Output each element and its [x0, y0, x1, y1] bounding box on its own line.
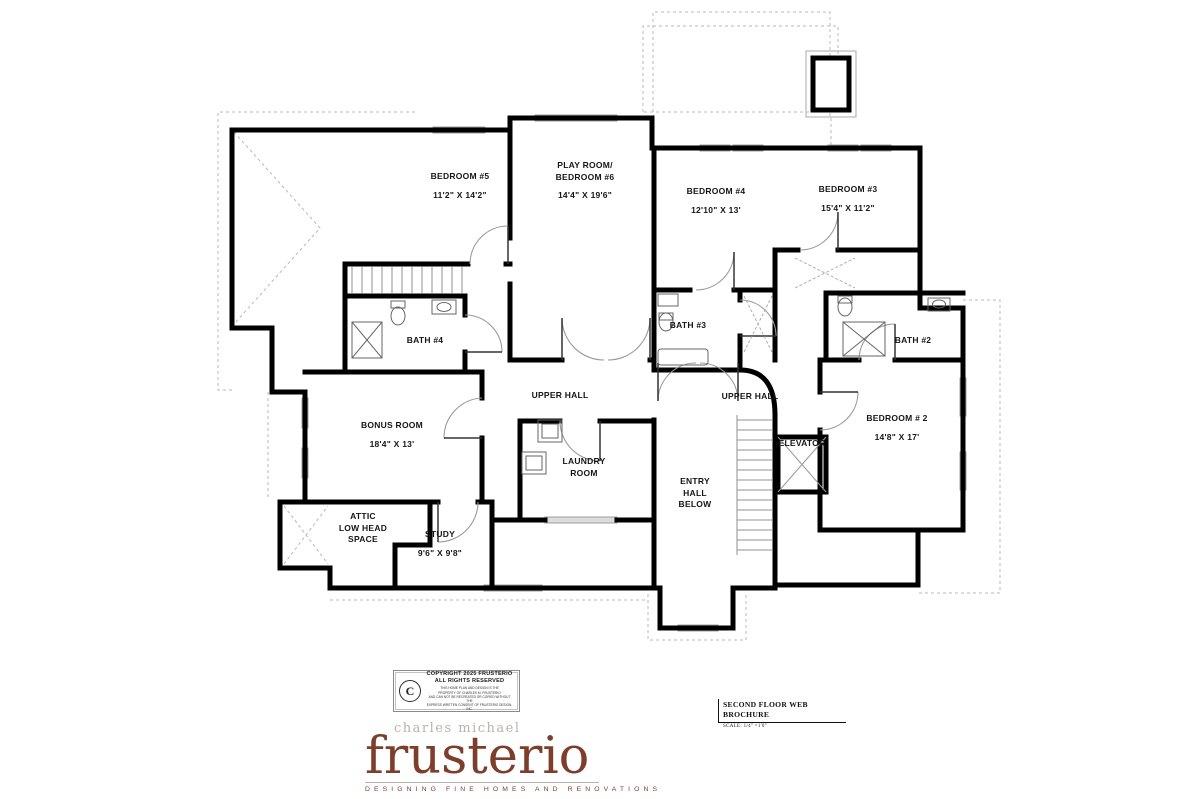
logo-tagline: DESIGNING FINE HOMES AND RENOVATIONS [365, 785, 601, 795]
room-label-playroom: PLAY ROOM/ BEDROOM #6 14'4" X 19'6" [556, 160, 615, 202]
fixtures [352, 294, 950, 492]
sheet-title-block: SECOND FLOOR WEB BROCHURE SCALE: 1/4" =1… [718, 699, 846, 731]
sheet-scale: SCALE: 1/4" =1'0" [718, 723, 846, 731]
room-label-bonus: BONUS ROOM 18'4" X 13' [361, 420, 423, 450]
room-label-upper-hall-left: UPPER HALL [532, 390, 589, 402]
room-label-bath4: BATH #4 [407, 335, 444, 347]
toilet-bath2 [838, 298, 852, 316]
copyright-letter: C [406, 684, 415, 699]
room-label-upper-hall-right: UPPER HALL [722, 391, 779, 403]
chimney [806, 51, 856, 117]
room-label-elevator: ELEVATOR [779, 438, 826, 450]
room-label-bedroom4: BEDROOM #4 12'10" X 13' [687, 186, 746, 216]
copyright-fine-print: THIS HOME PLAN AND DESIGN IS THE PROPERT… [425, 686, 514, 711]
room-label-bath2: BATH #2 [895, 335, 932, 347]
window-laundry [545, 517, 617, 523]
floor-plan: BEDROOM #5 11'2" X 14'2" PLAY ROOM/ BEDR… [0, 0, 1200, 799]
room-label-bedroom3: BEDROOM #3 15'4" X 11'2" [819, 184, 878, 214]
stairs-center [352, 267, 462, 293]
room-label-bedroom2: BEDROOM # 2 14'8" X 17' [866, 413, 927, 443]
room-label-bedroom5: BEDROOM #5 11'2" X 14'2" [431, 171, 490, 201]
sheet-title: SECOND FLOOR WEB BROCHURE [718, 699, 846, 723]
floor-plan-drawing [0, 0, 1200, 799]
toilet-bath4 [391, 307, 405, 325]
copyright-text: COPYRIGHT 2025 FRUSTERIO ALL RIGHTS RESE… [425, 671, 514, 711]
frusterio-logo: charles michael frusterio DESIGNING FINE… [365, 722, 601, 795]
copyright-inner-border: C COPYRIGHT 2025 FRUSTERIO ALL RIGHTS RE… [395, 672, 518, 710]
room-label-laundry: LAUNDRY ROOM [563, 456, 606, 479]
copyright-line2: ALL RIGHTS RESERVED [425, 678, 514, 685]
room-label-study: STUDY 9'6" X 9'8" [418, 529, 462, 559]
room-label-entry-hall: ENTRY HALL BELOW [679, 476, 712, 511]
logo-frusterio: frusterio [365, 736, 601, 778]
copyright-symbol: C [399, 680, 421, 702]
copyright-stamp: C COPYRIGHT 2025 FRUSTERIO ALL RIGHTS RE… [393, 670, 520, 712]
room-label-attic: ATTIC LOW HEAD SPACE [339, 511, 387, 546]
copyright-line1: COPYRIGHT 2025 FRUSTERIO [425, 671, 514, 678]
sink-bath3 [658, 294, 678, 306]
stairs-entry [737, 415, 773, 555]
room-label-bath3: BATH #3 [670, 320, 707, 332]
